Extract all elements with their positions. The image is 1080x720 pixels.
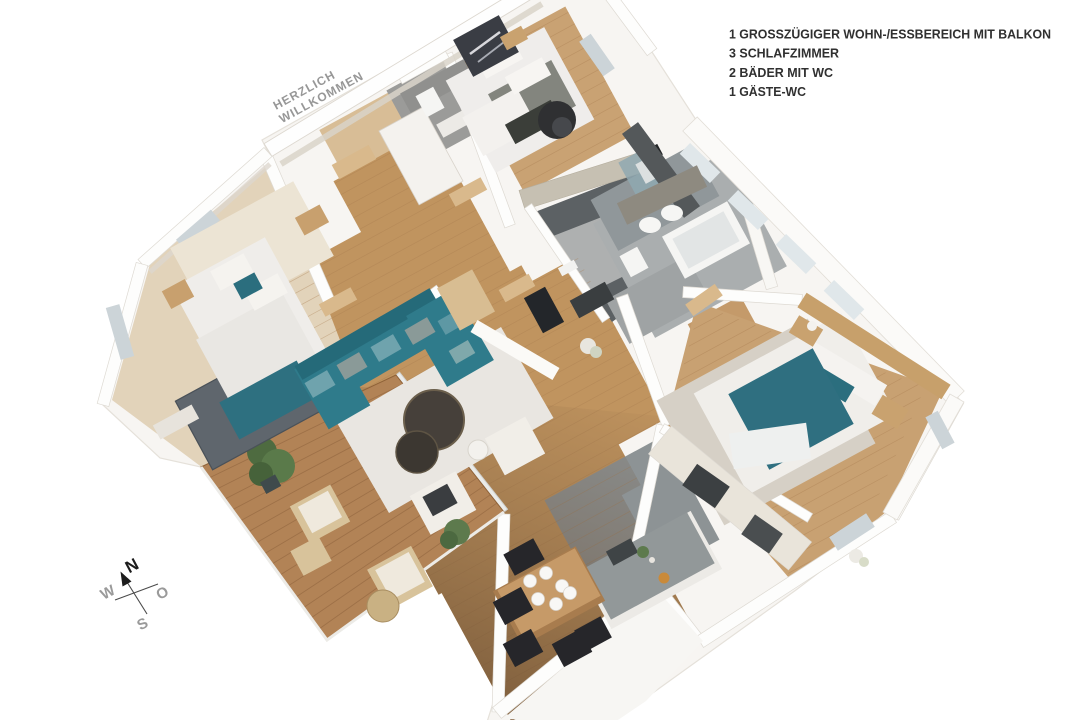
svg-text:1 GROSSZÜGIGER WOHN-/ESSBEREI: 1 GROSSZÜGIGER WOHN-/ESSBEREICH MIT BALK… [729, 26, 1051, 41]
svg-text:2 BÄDER MIT WC: 2 BÄDER MIT WC [729, 65, 834, 80]
svg-text:3 SCHLAFZIMMER: 3 SCHLAFZIMMER [729, 46, 840, 61]
svg-text:1 GÄSTE-WC: 1 GÄSTE-WC [729, 84, 807, 99]
